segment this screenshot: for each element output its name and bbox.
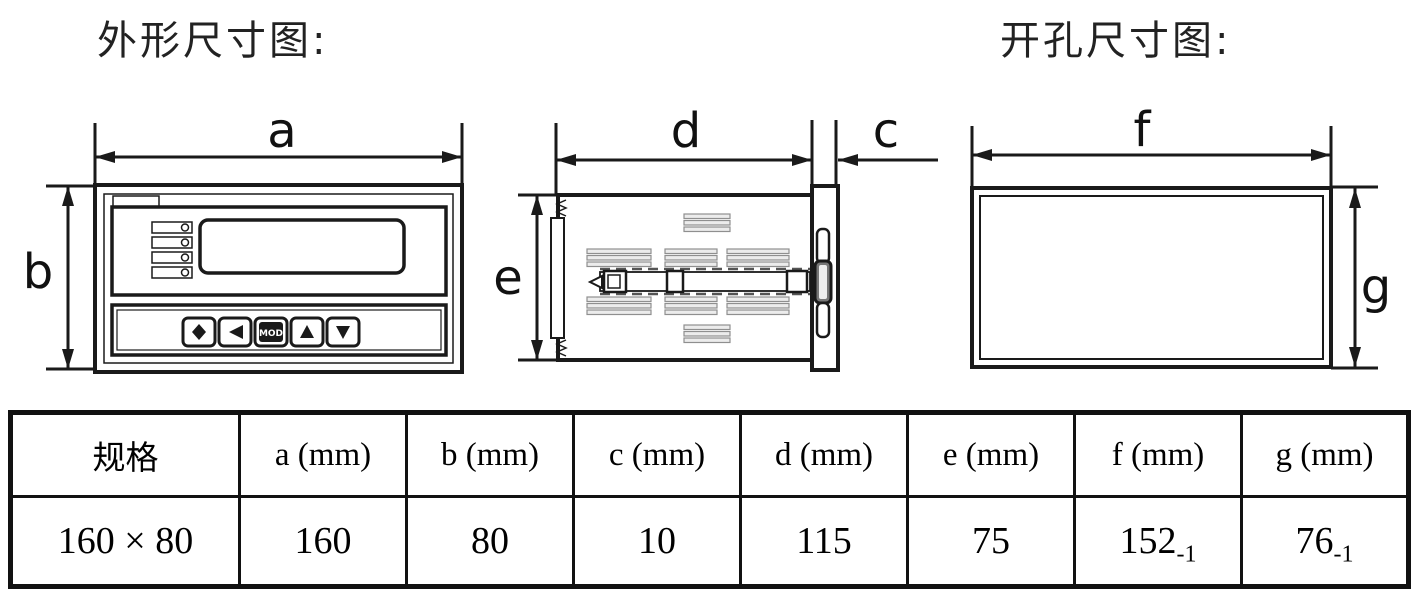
arrowhead bbox=[62, 349, 74, 369]
ic-component bbox=[667, 271, 683, 292]
dim-label-d: d bbox=[671, 103, 701, 159]
bezel-slot bbox=[817, 229, 829, 263]
dim-label-e: e bbox=[493, 250, 523, 306]
front-buttons: MOD bbox=[183, 318, 359, 346]
tolerance-subscript: -1 bbox=[1334, 542, 1354, 568]
header-label: a (mm) bbox=[275, 437, 371, 473]
header-label: e (mm) bbox=[943, 437, 1039, 473]
arrowhead bbox=[531, 340, 543, 360]
ic-component bbox=[608, 275, 620, 288]
value-cell-a: 160 bbox=[240, 497, 407, 587]
dim-label-b: b bbox=[23, 244, 53, 300]
led-icon bbox=[182, 254, 189, 261]
header-cell-e: e (mm) bbox=[908, 413, 1075, 497]
table-value-row: 160 × 80 160 80 10 115 75 152-1 76-1 bbox=[11, 497, 1409, 587]
arrowhead bbox=[62, 186, 74, 206]
value-label: 76 bbox=[1296, 520, 1334, 562]
value-label: 160 bbox=[295, 520, 352, 562]
dim-label-c: c bbox=[873, 103, 899, 159]
arrowhead bbox=[972, 149, 992, 161]
led-icon bbox=[182, 269, 189, 276]
value-cell-d: 115 bbox=[741, 497, 908, 587]
header-label: d (mm) bbox=[775, 437, 873, 473]
header-cell-g: g (mm) bbox=[1242, 413, 1409, 497]
dim-label-a: a bbox=[267, 103, 296, 159]
side-view: d c e bbox=[493, 103, 938, 370]
arrowhead bbox=[838, 154, 858, 166]
arrowhead bbox=[442, 151, 462, 163]
main-circuit-board bbox=[590, 269, 810, 294]
led-icon bbox=[182, 224, 189, 231]
bezel-slot bbox=[817, 303, 829, 337]
arrowhead bbox=[1311, 149, 1331, 161]
header-label: c (mm) bbox=[609, 437, 705, 473]
arrowhead bbox=[1349, 188, 1361, 208]
tolerance-subscript: -1 bbox=[1177, 542, 1197, 568]
value-cell-e: 75 bbox=[908, 497, 1075, 587]
arrowhead bbox=[95, 151, 115, 163]
header-cell-d: d (mm) bbox=[741, 413, 908, 497]
value-label: 152 bbox=[1120, 520, 1177, 562]
arrowhead bbox=[556, 154, 576, 166]
table-header-row: 规格 a (mm) b (mm) c (mm) d (mm) e (mm) f … bbox=[11, 413, 1409, 497]
header-cell-f: f (mm) bbox=[1075, 413, 1242, 497]
header-cell-c: c (mm) bbox=[574, 413, 741, 497]
value-cell-spec: 160 × 80 bbox=[11, 497, 240, 587]
value-label: 160 × 80 bbox=[58, 520, 193, 562]
dimension-diagrams: a b bbox=[0, 0, 1415, 400]
header-label: 规格 bbox=[93, 441, 159, 477]
arrowhead bbox=[792, 154, 812, 166]
value-label: 10 bbox=[638, 520, 676, 562]
display-window bbox=[200, 220, 404, 273]
header-label: b (mm) bbox=[441, 437, 539, 473]
value-label: 80 bbox=[471, 520, 509, 562]
header-cell-spec: 规格 bbox=[11, 413, 240, 497]
dim-label-g: g bbox=[1361, 259, 1391, 315]
value-cell-b: 80 bbox=[407, 497, 574, 587]
header-cell-a: a (mm) bbox=[240, 413, 407, 497]
front-view: a b bbox=[23, 103, 462, 372]
bezel-connector-inner bbox=[819, 265, 827, 299]
value-cell-c: 10 bbox=[574, 497, 741, 587]
value-cell-f: 152-1 bbox=[1075, 497, 1242, 587]
header-label: g (mm) bbox=[1275, 437, 1373, 473]
value-label: 75 bbox=[972, 520, 1010, 562]
value-cell-g: 76-1 bbox=[1242, 497, 1409, 587]
page: 外形尺寸图: 开孔尺寸图: a b bbox=[0, 0, 1415, 594]
header-label: f (mm) bbox=[1112, 437, 1205, 473]
arrowhead bbox=[1349, 347, 1361, 367]
cutout-view: f g bbox=[972, 102, 1391, 368]
value-label: 115 bbox=[796, 520, 852, 562]
mod-button-label: MOD bbox=[259, 329, 283, 339]
ic-component bbox=[787, 271, 807, 292]
mounting-bracket bbox=[551, 218, 564, 338]
dim-label-f: f bbox=[1134, 102, 1152, 158]
dimension-table: 规格 a (mm) b (mm) c (mm) d (mm) e (mm) f … bbox=[8, 410, 1411, 589]
header-cell-b: b (mm) bbox=[407, 413, 574, 497]
panel-cutout-outer bbox=[972, 188, 1331, 367]
arrowhead bbox=[531, 195, 543, 215]
led-icon bbox=[182, 239, 189, 246]
